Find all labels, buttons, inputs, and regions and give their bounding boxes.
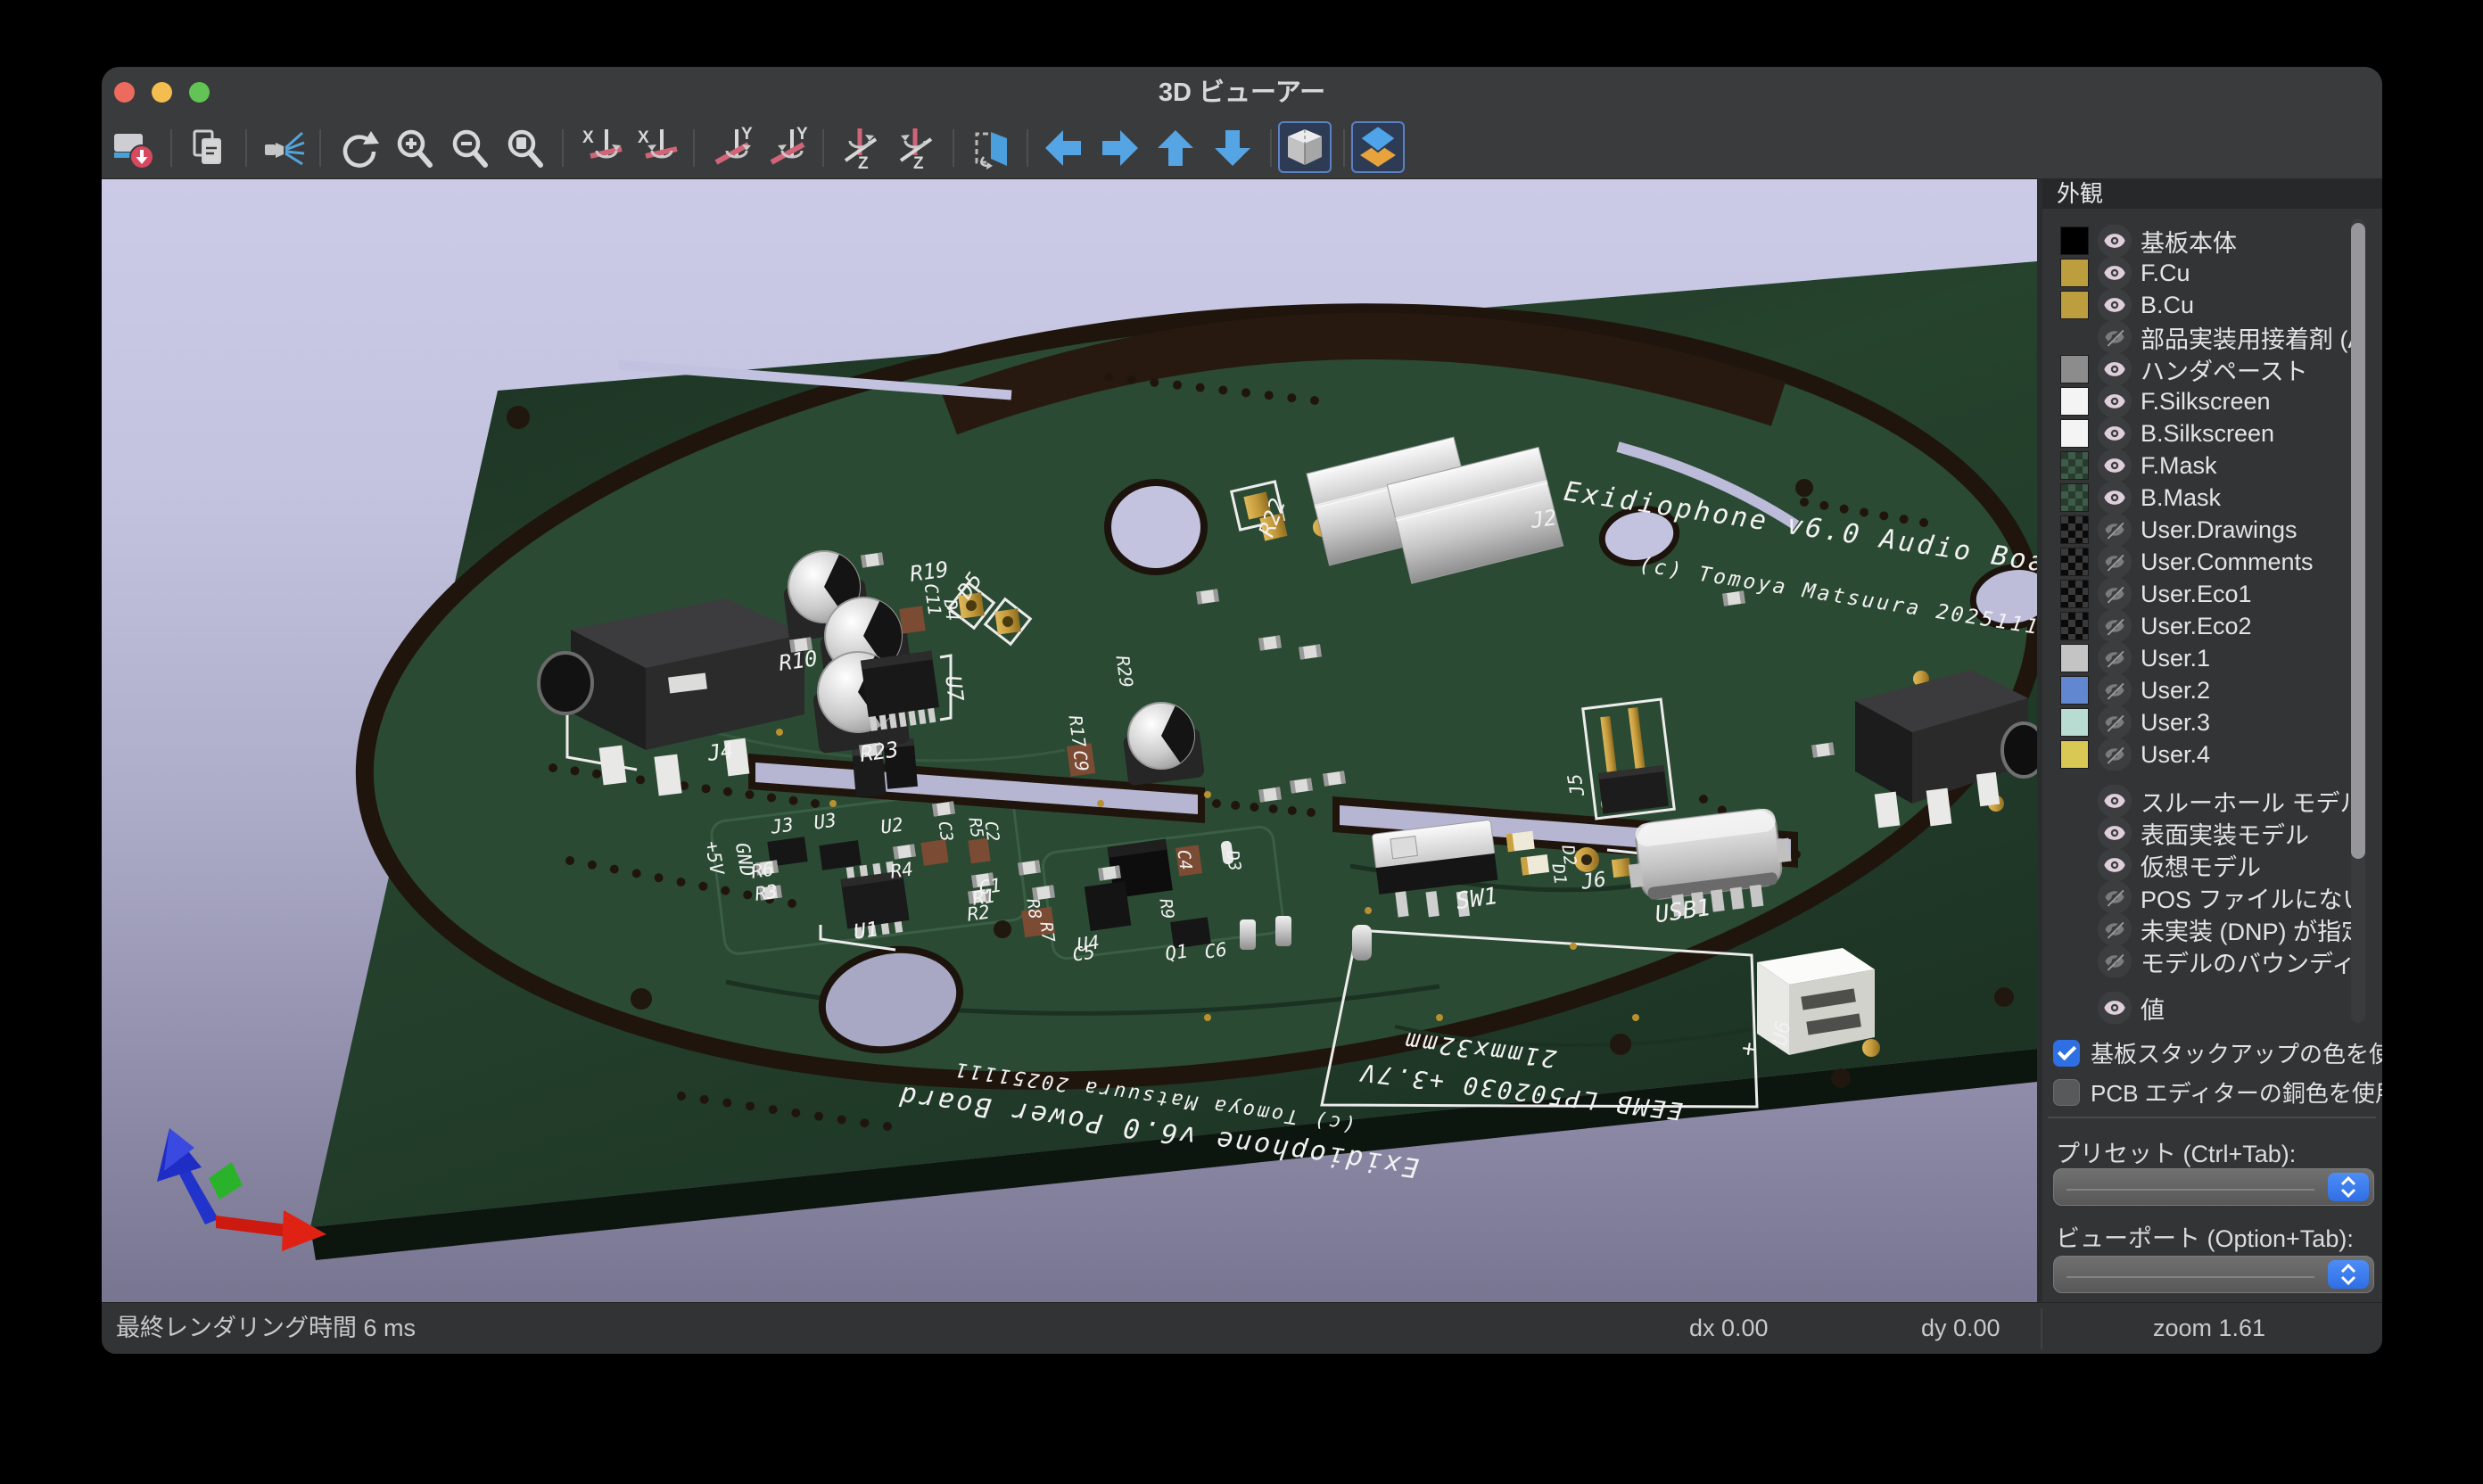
layer-color-swatch[interactable]	[2060, 419, 2089, 448]
layer-color-swatch[interactable]	[2060, 227, 2089, 255]
appearance-panel-title: 外観	[2042, 178, 2382, 209]
rotate-z-counterclockwise-icon: Z	[892, 125, 938, 171]
layer-label: B.Cu	[2141, 292, 2194, 319]
layer-label: F.Cu	[2141, 260, 2190, 287]
layer-row[interactable]: 部品実装用接着剤 (Adh	[2042, 321, 2355, 353]
reference-designator: J3	[769, 813, 795, 837]
layer-color-swatch[interactable]	[2060, 483, 2089, 512]
eye-visible-icon[interactable]	[2098, 992, 2132, 1024]
layer-label: B.Mask	[2141, 484, 2221, 512]
reference-designator: D1	[1547, 862, 1570, 886]
layer-row[interactable]: B.Silkscreen	[2042, 417, 2355, 449]
preset-label: プリセット (Ctrl+Tab):	[2056, 1134, 2296, 1169]
reference-designator: J4	[705, 738, 736, 766]
layer-row[interactable]: 仮想モデル	[2042, 849, 2355, 881]
layer-label: User.Drawings	[2141, 516, 2297, 544]
reference-designator: Q1	[1164, 940, 1189, 964]
swatch-spacer	[2060, 819, 2089, 847]
eye-visible-icon[interactable]	[2098, 225, 2132, 257]
refresh-view-button[interactable]	[332, 123, 382, 173]
viewport-stepper-icon[interactable]	[2328, 1260, 2369, 1289]
layer-color-swatch[interactable]	[2060, 515, 2089, 544]
layer-row[interactable]: User.Eco1	[2042, 578, 2355, 610]
layer-row[interactable]: F.Mask	[2042, 449, 2355, 482]
preset-dropdown[interactable]	[2053, 1168, 2374, 1206]
layer-color-swatch[interactable]	[2060, 644, 2089, 672]
eye-visible-icon[interactable]	[2098, 785, 2132, 817]
orthographic-projection-button[interactable]	[1278, 121, 1332, 173]
pan-left-button[interactable]	[1038, 123, 1088, 173]
reference-designator: R9	[1155, 897, 1177, 920]
svg-text:X: X	[582, 128, 594, 147]
use-pcb-copper-label: PCB エディターの銅色を使用	[2091, 1076, 2382, 1109]
eye-hidden-icon[interactable]	[2098, 881, 2132, 913]
reference-designator: U6	[1769, 1019, 1795, 1048]
eye-visible-icon[interactable]	[2098, 289, 2132, 321]
layer-label: モデルのバウンディングボ	[2141, 945, 2355, 977]
layer-color-swatch[interactable]	[2060, 708, 2089, 737]
rotate-z-clockwise-button[interactable]: Z	[835, 123, 885, 173]
viewport-label: ビューポート (Option+Tab):	[2056, 1219, 2354, 1254]
rotate-y-counterclockwise-icon: Y	[763, 125, 809, 171]
swatch-spacer	[2060, 787, 2089, 815]
refresh-view-icon	[334, 125, 380, 171]
viewport-dropdown[interactable]	[2053, 1256, 2374, 1293]
flip-board-button[interactable]	[965, 123, 1015, 173]
svg-text:Y: Y	[741, 125, 753, 144]
eye-visible-icon[interactable]	[2098, 482, 2132, 514]
layer-label: スルーホール モデル	[2141, 785, 2355, 817]
axis-gizmo-icon	[157, 1128, 326, 1251]
layer-label: 未実装 (DNP) が指定され	[2141, 913, 2355, 945]
layer-color-swatch[interactable]	[2060, 451, 2089, 480]
layer-row[interactable]: User.2	[2042, 674, 2355, 706]
layer-row[interactable]: User.3	[2042, 706, 2355, 738]
layer-color-swatch[interactable]	[2060, 355, 2089, 383]
eye-hidden-icon[interactable]	[2098, 321, 2132, 353]
dy-status: dy 0.00	[1921, 1303, 2000, 1353]
layer-color-swatch[interactable]	[2060, 612, 2089, 640]
eye-visible-icon[interactable]	[2098, 417, 2132, 449]
dx-status: dx 0.00	[1689, 1303, 1769, 1353]
eye-hidden-icon[interactable]	[2098, 514, 2132, 546]
sidebar-divider	[2048, 1117, 2376, 1118]
zoom-in-icon	[391, 125, 437, 171]
rotate-z-clockwise-icon: Z	[837, 125, 883, 171]
layer-row[interactable]: User.Comments	[2042, 546, 2355, 578]
layer-row[interactable]: User.Drawings	[2042, 514, 2355, 546]
zoom-out-button[interactable]	[444, 123, 494, 173]
rotate-x-counterclockwise-button[interactable]: X	[631, 123, 681, 173]
layer-row[interactable]: POS ファイルにないモデ	[2042, 881, 2355, 913]
eye-visible-icon[interactable]	[2098, 817, 2132, 849]
layer-row[interactable]: F.Silkscreen	[2042, 385, 2355, 417]
eye-visible-icon[interactable]	[2098, 385, 2132, 417]
layer-label: F.Silkscreen	[2141, 388, 2271, 416]
layer-label: User.4	[2141, 741, 2210, 769]
layer-color-swatch[interactable]	[2060, 548, 2089, 576]
svg-text:Z: Z	[913, 154, 924, 171]
pan-right-button[interactable]	[1095, 123, 1145, 173]
sidebar-scrollbar-thumb[interactable]	[2351, 223, 2365, 859]
window-title: 3D ビューアー	[102, 67, 2382, 119]
layer-label: User.1	[2141, 645, 2210, 672]
eye-hidden-icon[interactable]	[2098, 674, 2132, 706]
layer-row[interactable]: スルーホール モデル	[2042, 785, 2355, 817]
eye-visible-icon[interactable]	[2098, 849, 2132, 881]
reference-designator: R2	[966, 901, 991, 925]
pan-up-button[interactable]	[1151, 123, 1200, 173]
preset-stepper-icon[interactable]	[2328, 1173, 2369, 1201]
reference-designator: R23	[858, 737, 900, 767]
reference-designator: R29	[1112, 654, 1138, 688]
use-stackup-colors-label: 基板スタックアップの色を使用	[2091, 1036, 2382, 1069]
copy-image-button[interactable]	[183, 123, 233, 173]
eye-hidden-icon[interactable]	[2098, 642, 2132, 674]
eye-visible-icon[interactable]	[2098, 449, 2132, 482]
eye-visible-icon[interactable]	[2098, 353, 2132, 385]
pan-left-icon	[1038, 123, 1088, 173]
pan-up-icon	[1151, 123, 1200, 173]
swatch-spacer	[2060, 323, 2089, 351]
swatch-spacer	[2060, 993, 2089, 1022]
pan-down-icon	[1208, 123, 1258, 173]
export-3d-image-button[interactable]	[108, 123, 158, 173]
layer-label: 仮想モデル	[2141, 849, 2261, 881]
layer-color-swatch[interactable]	[2060, 387, 2089, 416]
status-divider	[2041, 1308, 2042, 1349]
layer-row[interactable]: User.1	[2042, 642, 2355, 674]
render-time-status: 最終レンダリング時間 6 ms	[116, 1303, 416, 1353]
layer-color-swatch[interactable]	[2060, 580, 2089, 608]
layer-color-swatch[interactable]	[2060, 259, 2089, 287]
reference-designator: U7	[940, 674, 968, 704]
layer-row[interactable]: 表面実装モデル	[2042, 817, 2355, 849]
reference-designator: C6	[1203, 938, 1228, 962]
layer-label: 値	[2141, 992, 2165, 1024]
layer-row[interactable]: ハンダペースト	[2042, 353, 2355, 385]
layer-color-swatch[interactable]	[2060, 676, 2089, 705]
layer-row[interactable]: モデルのバウンディングボ	[2042, 945, 2355, 977]
layer-label: POS ファイルにないモデ	[2141, 881, 2355, 913]
use-stackup-colors-checkbox[interactable]	[2053, 1040, 2080, 1067]
reference-designator: J6	[1580, 868, 1608, 895]
reference-designator: R17	[1065, 713, 1091, 748]
layer-row[interactable]: 未実装 (DNP) が指定され	[2042, 913, 2355, 945]
appearance-layers-icon	[1355, 124, 1401, 170]
layer-row[interactable]: 基板本体	[2042, 225, 2355, 257]
reference-designator: U3	[813, 809, 837, 833]
layer-label: ハンダペースト	[2141, 353, 2308, 385]
zoom-status: zoom 1.61	[2153, 1303, 2265, 1353]
layer-row[interactable]: B.Mask	[2042, 482, 2355, 514]
eye-hidden-icon[interactable]	[2098, 913, 2132, 945]
use-pcb-copper-row[interactable]: PCB エディターの銅色を使用	[2053, 1076, 2382, 1109]
export-3d-image-icon	[110, 125, 156, 171]
reference-designator: R10	[777, 646, 819, 676]
reference-designator: C2	[980, 820, 1002, 843]
layer-row[interactable]: B.Cu	[2042, 289, 2355, 321]
eye-hidden-icon[interactable]	[2098, 610, 2132, 642]
copy-image-icon	[185, 125, 231, 171]
layer-row[interactable]: 値	[2042, 992, 2355, 1024]
layer-label: User.Eco1	[2141, 581, 2252, 608]
rotate-x-clockwise-icon: X	[577, 125, 623, 171]
pcb-3d-render: Exidiophone v6.0 Audio Board(c) Tomoya M…	[102, 179, 2037, 1303]
layer-row[interactable]: User.Eco2	[2042, 610, 2355, 642]
eye-hidden-icon[interactable]	[2098, 738, 2132, 771]
layer-color-swatch[interactable]	[2060, 740, 2089, 769]
status-bar: 最終レンダリング時間 6 ms dx 0.00 dy 0.00 zoom 1.6…	[102, 1302, 2382, 1354]
layer-row[interactable]: F.Cu	[2042, 257, 2355, 289]
layer-label: User.3	[2141, 709, 2210, 737]
appearance-panel: 外観 基板本体F.CuB.Cu部品実装用接着剤 (AdhハンダペーストF.Sil…	[2042, 178, 2382, 1302]
reference-designator: R6	[750, 858, 775, 882]
eye-hidden-icon[interactable]	[2098, 706, 2132, 738]
reference-designator: C3	[934, 820, 956, 843]
rotate-y-clockwise-icon: Y	[707, 125, 754, 171]
svg-text:Z: Z	[858, 154, 869, 171]
reference-designator: C9	[1068, 748, 1093, 772]
reference-designator: R19	[908, 556, 950, 587]
zoom-fit-icon	[501, 125, 548, 171]
pan-down-button[interactable]	[1208, 123, 1258, 173]
eye-hidden-icon[interactable]	[2098, 945, 2132, 977]
layer-label: 表面実装モデル	[2141, 817, 2309, 849]
zoom-out-icon	[446, 125, 492, 171]
layer-label: User.Eco2	[2141, 613, 2252, 640]
rotate-x-clockwise-button[interactable]: X	[575, 123, 625, 173]
layer-visibility-list: 基板本体F.CuB.Cu部品実装用接着剤 (AdhハンダペーストF.Silksc…	[2042, 214, 2382, 1029]
reference-designator: R8	[1022, 897, 1044, 920]
reference-designator: J5	[1563, 772, 1588, 799]
zoom-fit-button[interactable]	[499, 123, 549, 173]
reference-designator: C4	[1173, 848, 1195, 871]
reference-designator: R4	[889, 858, 914, 882]
layer-row[interactable]: User.4	[2042, 738, 2355, 771]
layer-label: 基板本体	[2141, 225, 2237, 257]
swatch-spacer	[2060, 851, 2089, 879]
reference-designator: C5	[1071, 941, 1096, 965]
use-pcb-copper-checkbox[interactable]	[2053, 1079, 2080, 1106]
flip-board-icon	[967, 125, 1013, 171]
reference-designator: D4	[939, 597, 963, 622]
reference-designator: U1	[852, 918, 879, 944]
layer-label: User.2	[2141, 677, 2210, 705]
layer-label: User.Comments	[2141, 548, 2314, 576]
pan-right-icon	[1095, 123, 1145, 173]
rotate-y-clockwise-button[interactable]: Y	[705, 123, 755, 173]
reference-designator: D3	[1222, 848, 1244, 872]
svg-text:X: X	[638, 128, 649, 147]
reference-designator: R7	[1035, 920, 1058, 944]
rotate-x-counterclockwise-icon: X	[632, 125, 679, 171]
viewport-3d[interactable]: Exidiophone v6.0 Audio Board(c) Tomoya M…	[102, 178, 2037, 1303]
eye-hidden-icon[interactable]	[2098, 578, 2132, 610]
use-stackup-colors-row[interactable]: 基板スタックアップの色を使用	[2053, 1036, 2382, 1069]
zoom-in-button[interactable]	[389, 123, 439, 173]
reference-designator: U2	[879, 813, 904, 837]
appearance-layers-button[interactable]	[1351, 121, 1405, 173]
swatch-spacer	[2060, 915, 2089, 944]
eye-visible-icon[interactable]	[2098, 257, 2132, 289]
layer-color-swatch[interactable]	[2060, 291, 2089, 319]
orthographic-projection-icon	[1282, 124, 1328, 170]
swatch-spacer	[2060, 883, 2089, 911]
eye-hidden-icon[interactable]	[2098, 546, 2132, 578]
reference-designator: R3	[754, 880, 779, 904]
layer-label: F.Mask	[2141, 452, 2217, 480]
raytrace-render-icon	[259, 125, 305, 171]
rotate-y-counterclockwise-button[interactable]: Y	[761, 123, 811, 173]
layer-label: B.Silkscreen	[2141, 420, 2274, 448]
3d-viewer-window: 3D ビューアー	[102, 67, 2382, 1354]
reference-designator: J2	[1529, 505, 1559, 533]
layer-label: 部品実装用接着剤 (Adh	[2141, 321, 2355, 353]
toolbar: X X Y	[102, 119, 2382, 178]
rotate-z-counterclockwise-button[interactable]: Z	[890, 123, 940, 173]
swatch-spacer	[2060, 947, 2089, 976]
raytrace-render-button[interactable]	[257, 123, 307, 173]
title-bar[interactable]: 3D ビューアー	[102, 67, 2382, 120]
svg-text:Y: Y	[796, 125, 808, 144]
